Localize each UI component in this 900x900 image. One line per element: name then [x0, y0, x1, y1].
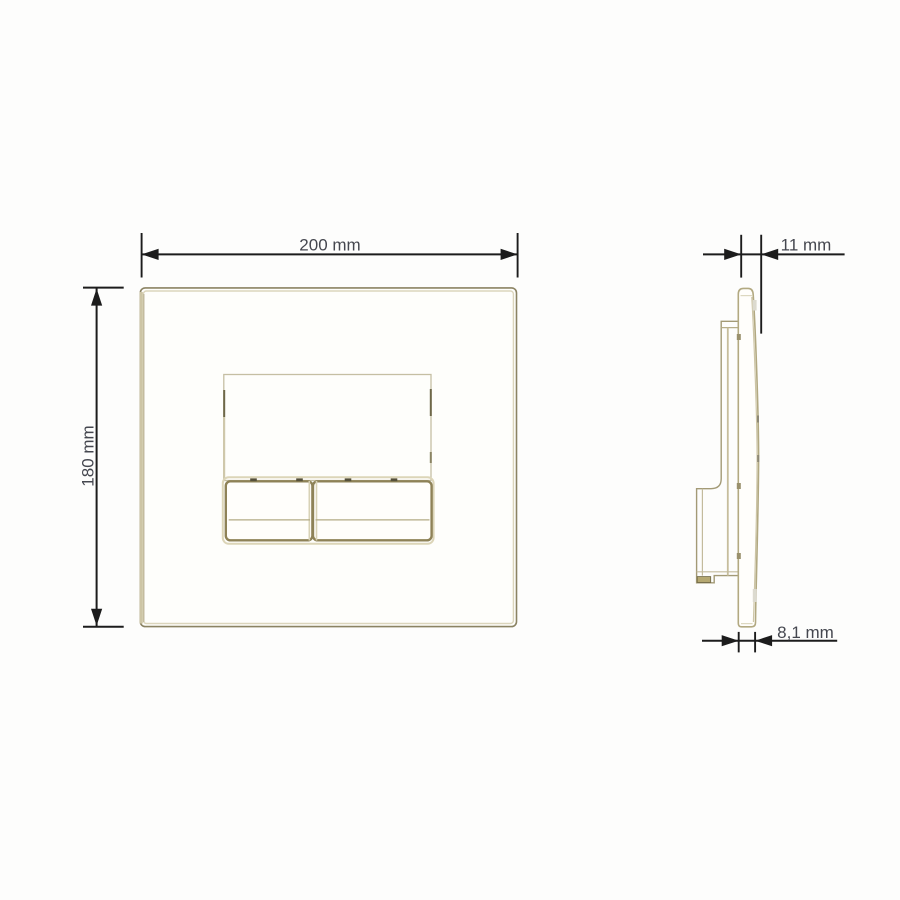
svg-text:11 mm: 11 mm — [781, 236, 832, 255]
svg-text:180 mm: 180 mm — [79, 425, 98, 486]
svg-text:8,1 mm: 8,1 mm — [777, 623, 834, 642]
svg-text:200 mm: 200 mm — [299, 236, 360, 255]
